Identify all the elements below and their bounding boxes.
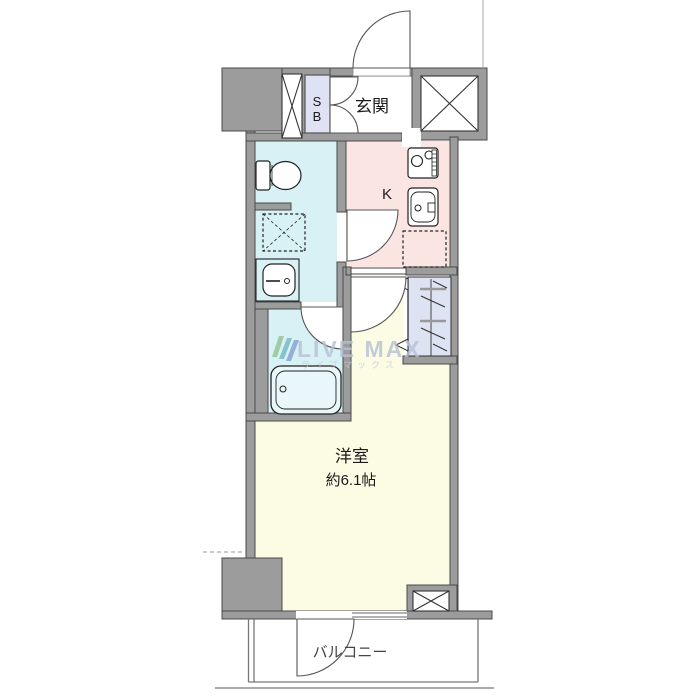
label-kitchen: K — [382, 186, 392, 203]
entrance-door-opening — [353, 68, 410, 76]
bathtub-icon — [271, 366, 341, 414]
wall-washroom-kitchen-upper — [337, 141, 346, 212]
wall-kitchen-bottom-stub — [346, 267, 351, 275]
pillar-box-top-right — [421, 76, 478, 131]
wall-bathroom-left — [255, 309, 268, 413]
pillar-box-bottom-right — [413, 591, 449, 611]
main-room-fill-mid — [351, 364, 450, 421]
main-room-fill-wide — [255, 421, 450, 560]
wall-left — [246, 131, 255, 611]
watermark-text: LIVE MAX — [297, 336, 422, 362]
main-room-fill-low — [282, 560, 450, 585]
kitchen-sink-icon — [408, 188, 438, 226]
main-room-door-leaf — [351, 268, 406, 274]
pillar-box-left — [282, 74, 302, 138]
balcony-opening — [296, 611, 407, 619]
label-entrance: 玄関 — [355, 97, 389, 116]
label-shoebox-s: S — [313, 94, 322, 109]
entrance-door-arc — [353, 11, 410, 68]
entrance-kitchen-passage — [402, 128, 421, 147]
wall-right — [450, 137, 458, 611]
toilet-icon — [256, 161, 301, 190]
wall-bathroom-top — [255, 302, 301, 309]
wall-under-entrance — [246, 133, 402, 141]
floor-plan-page: 玄関 S B K 洋室 約6.1帖 バルコニー LIVE MAX ライブマックス — [0, 0, 700, 700]
wall-block-bottom-left — [222, 558, 282, 611]
label-main-room-size: 約6.1帖 — [326, 472, 377, 489]
wall-block-top-left — [222, 68, 282, 131]
label-main-room: 洋室 — [335, 447, 369, 466]
floor-plan-svg: 玄関 S B K 洋室 約6.1帖 バルコニー LIVE MAX ライブマックス — [0, 0, 700, 700]
main-room-fill-bottom — [282, 585, 407, 611]
label-shoebox-b: B — [313, 109, 322, 124]
label-balcony: バルコニー — [313, 644, 388, 661]
wall-above-closet — [406, 267, 457, 275]
stove-icon — [408, 148, 438, 178]
watermark-subtext: ライブマックス — [301, 359, 399, 370]
wall-toilet-stub — [255, 203, 291, 210]
